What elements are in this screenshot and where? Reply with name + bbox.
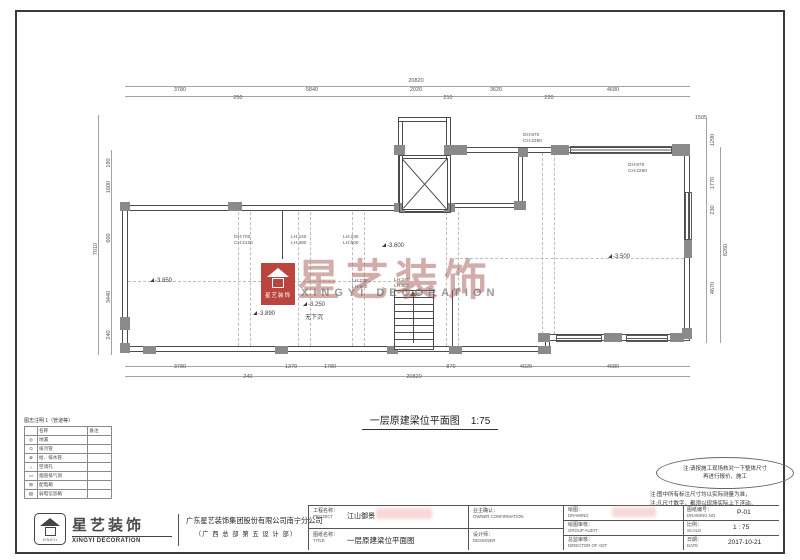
redaction bbox=[376, 508, 432, 519]
legend-cell: 给、排水管 bbox=[38, 454, 88, 463]
dimension-label: 210 bbox=[443, 95, 452, 101]
legend-header: 备注 bbox=[88, 427, 112, 436]
dimension-label: 220 bbox=[544, 95, 553, 101]
wall-segment bbox=[451, 203, 523, 208]
dimension-label: 1290 bbox=[710, 134, 716, 146]
legend-symbol-icon: ▭ bbox=[25, 472, 38, 481]
dimension-label: 4680 bbox=[607, 87, 619, 93]
house-roof-icon bbox=[40, 518, 60, 526]
column-pillar bbox=[514, 201, 526, 210]
column-pillar bbox=[275, 346, 288, 354]
owner-label: 业主确认：OWNER CONFIRMATION bbox=[473, 508, 524, 520]
date-value: 2017-10-21 bbox=[728, 539, 761, 546]
height-label: DH:970CH:2260 bbox=[628, 163, 647, 175]
legend-cell bbox=[88, 472, 112, 481]
drawing-no-label: 图纸编号：DRAWING NO bbox=[687, 507, 715, 519]
beam-dashed-line bbox=[250, 212, 251, 346]
legend-cell bbox=[88, 490, 112, 499]
legend-table: 名称备注 ◎地漏⊙排污管⊕给、排水管○空调孔▭烟道排气洞⊞配电箱▤弱电信息箱 bbox=[24, 426, 112, 499]
dimension-label: 3780 bbox=[174, 364, 186, 370]
column-pillar bbox=[120, 317, 130, 330]
dimension-label: 20820 bbox=[408, 78, 423, 84]
legend-symbol-icon: ▤ bbox=[25, 490, 38, 499]
column-pillar bbox=[228, 202, 242, 211]
scale-label: 比例：SCALE bbox=[687, 522, 702, 534]
director-label: 总监审核：DIRECTOR OF ADT bbox=[568, 537, 607, 549]
house-door-icon bbox=[45, 527, 56, 536]
legend-cell: 排污管 bbox=[38, 445, 88, 454]
column-pillar bbox=[451, 145, 467, 155]
text-label: 无下沉 bbox=[305, 312, 323, 321]
watermark-logo: 星艺装饰 bbox=[261, 263, 295, 305]
dimension-label: 870 bbox=[446, 364, 455, 370]
sheet-title-label: 图纸名称：TITLE bbox=[313, 532, 338, 544]
logotype-english: XINGYI DECORATION bbox=[72, 536, 172, 544]
column-pillar bbox=[604, 333, 622, 342]
legend-row: ⊙排污管 bbox=[25, 445, 112, 454]
legend-cell: 空调孔 bbox=[38, 463, 88, 472]
column-pillar bbox=[394, 145, 405, 155]
plan-title: 一层原建梁位平面图 bbox=[370, 416, 460, 427]
legend-row: ◎地漏 bbox=[25, 436, 112, 445]
dimension-label: 3780 bbox=[174, 87, 186, 93]
dimension-label: 230 bbox=[710, 205, 716, 214]
dimension-label: 1770 bbox=[710, 177, 716, 189]
watermark-logo-text: 星艺装饰 bbox=[261, 291, 295, 299]
legend-symbol-icon: ⊞ bbox=[25, 481, 38, 490]
dimension-label: 190 bbox=[106, 158, 112, 167]
sheet-title-value: 一层原建梁位平面图 bbox=[347, 535, 415, 546]
dimension-label: 240 bbox=[243, 374, 252, 380]
level-marker: -3.850 bbox=[150, 278, 172, 284]
note-line: 注:凡尺寸数字，都须以现场实际上下浮动。 bbox=[650, 500, 795, 509]
dimension-label: 1600 bbox=[106, 181, 112, 193]
drawing-no-value: P-01 bbox=[737, 509, 751, 516]
company-logotype: 星艺装饰 XINGYI DECORATION bbox=[72, 514, 172, 544]
legend-cell: 地漏 bbox=[38, 436, 88, 445]
plan-scale: 1:75 bbox=[471, 416, 490, 427]
legend-cell bbox=[88, 463, 112, 472]
legend-title: 图志注明 1（管道等） bbox=[24, 417, 119, 424]
dimension-label: 3440 bbox=[106, 291, 112, 303]
column-pillar bbox=[518, 148, 528, 157]
dimension-label: 1780 bbox=[324, 364, 336, 370]
company-name: 广东星艺装饰集团股份有限公司南宁分公司 （广 西 总 部 第 五 设 计 部） bbox=[186, 516, 306, 538]
note-line: 注:图中所有标注尺寸均以实际测量为准， bbox=[650, 491, 795, 500]
dimension-label: 250 bbox=[233, 95, 242, 101]
dimension-line bbox=[125, 86, 690, 87]
legend-header: 名称 bbox=[38, 427, 88, 436]
column-pillar bbox=[670, 333, 684, 342]
legend-header bbox=[25, 427, 38, 436]
logotype-chinese: 星艺装饰 bbox=[72, 514, 172, 535]
window bbox=[685, 192, 692, 240]
legend-row: ○空调孔 bbox=[25, 463, 112, 472]
wall-segment bbox=[122, 346, 548, 352]
column-pillar bbox=[551, 145, 569, 155]
logo-caption: XINGYI bbox=[35, 538, 65, 542]
dimension-label: 20820 bbox=[406, 374, 421, 380]
height-label: DH:700CH:2100 bbox=[234, 235, 253, 247]
window bbox=[570, 146, 672, 154]
scale-value: 1 : 75 bbox=[733, 524, 749, 531]
legend-symbol-icon: ◎ bbox=[25, 436, 38, 445]
designer-label: 设计师：DESIGNER bbox=[473, 532, 495, 544]
window bbox=[556, 335, 602, 342]
dimension-label: 4680 bbox=[607, 364, 619, 370]
dimension-label: 4670 bbox=[710, 282, 716, 294]
legend-symbol-icon: ○ bbox=[25, 463, 38, 472]
legend-symbol-icon: ⊙ bbox=[25, 445, 38, 454]
wall-segment bbox=[398, 117, 451, 122]
date-label: 日期：DATE bbox=[687, 537, 702, 549]
dimension-label: 2020 bbox=[410, 87, 422, 93]
legend-cell bbox=[88, 454, 112, 463]
legend-cell: 烟道排气洞 bbox=[38, 472, 88, 481]
column-pillar bbox=[538, 346, 551, 354]
height-label: LH:240LH:380 bbox=[291, 235, 306, 247]
dimension-line bbox=[125, 96, 690, 97]
dimension-label: 7010 bbox=[93, 243, 99, 255]
dimension-label: 600 bbox=[106, 233, 112, 242]
company-logo: XINGYI bbox=[34, 513, 66, 545]
company-line2: （广 西 总 部 第 五 设 计 部） bbox=[186, 529, 306, 538]
level-marker: -3.890 bbox=[253, 311, 275, 317]
dimension-label: 240 bbox=[106, 330, 112, 339]
legend-cell: 配电箱 bbox=[38, 481, 88, 490]
wall-segment bbox=[122, 205, 400, 211]
column-pillar bbox=[449, 346, 462, 354]
legend: 图志注明 1（管道等） 名称备注 ◎地漏⊙排污管⊕给、排水管○空调孔▭烟道排气洞… bbox=[24, 417, 119, 499]
dimension-label: 5840 bbox=[306, 87, 318, 93]
level-marker: -3.500 bbox=[608, 254, 630, 260]
watermark-english-text: XINGYI DECORATION bbox=[301, 287, 499, 299]
column-pillar bbox=[672, 144, 690, 156]
legend-cell bbox=[88, 445, 112, 454]
column-pillar bbox=[120, 202, 130, 211]
legend-row: ⊞配电箱 bbox=[25, 481, 112, 490]
audit-label: 绘图审核：GROUP AUDIT bbox=[568, 522, 598, 534]
column-pillar bbox=[538, 333, 550, 342]
dimension-label: 1370 bbox=[285, 364, 297, 370]
legend-symbol-icon: ⊕ bbox=[25, 454, 38, 463]
dimension-label: 4020 bbox=[520, 364, 532, 370]
logo-divider bbox=[178, 514, 179, 546]
house-roof-icon bbox=[267, 268, 289, 277]
dimension-label: 8260 bbox=[723, 244, 729, 256]
project-value: 江山御景 bbox=[347, 511, 375, 521]
note-line: 再进行报价、施工 bbox=[657, 473, 793, 481]
column-pillar bbox=[684, 240, 692, 258]
company-line1: 广东星艺装饰集团股份有限公司南宁分公司 bbox=[186, 516, 306, 526]
wall-segment bbox=[518, 152, 523, 208]
dimension-line bbox=[125, 366, 690, 367]
dimension-line bbox=[98, 115, 99, 355]
dimension-line bbox=[720, 147, 721, 343]
house-door-icon bbox=[272, 278, 284, 288]
beam-dashed-line bbox=[238, 212, 239, 346]
column-pillar bbox=[143, 346, 156, 354]
dimension-line bbox=[706, 118, 707, 343]
height-label: LH:230LH:500 bbox=[343, 235, 358, 247]
plan-caption: 一层原建梁位平面图 1:75 bbox=[310, 411, 550, 430]
legend-cell: 弱电信息箱 bbox=[38, 490, 88, 499]
column-pillar bbox=[120, 343, 130, 353]
dimension-label: 1505 bbox=[695, 115, 707, 121]
note-line: 注:请按施工现场核对一下整体尺寸 bbox=[657, 465, 793, 473]
legend-row: ▭烟道排气洞 bbox=[25, 472, 112, 481]
interior-wall-line bbox=[282, 211, 283, 259]
project-label: 工程名称：PROJECT bbox=[313, 508, 338, 520]
legend-cell bbox=[88, 436, 112, 445]
drawing-label: 绘图：DRAWING bbox=[568, 507, 589, 519]
redaction bbox=[612, 507, 656, 517]
revision-cloud-note: 注:请按施工现场核对一下整体尺寸 再进行报价、施工 bbox=[656, 457, 794, 489]
legend-row: ▤弱电信息箱 bbox=[25, 490, 112, 499]
legend-row: ⊕给、排水管 bbox=[25, 454, 112, 463]
window bbox=[626, 335, 668, 342]
height-label: DH:970CH:2260 bbox=[523, 133, 542, 145]
legend-cell bbox=[88, 481, 112, 490]
dimension-label: 3620 bbox=[490, 87, 502, 93]
